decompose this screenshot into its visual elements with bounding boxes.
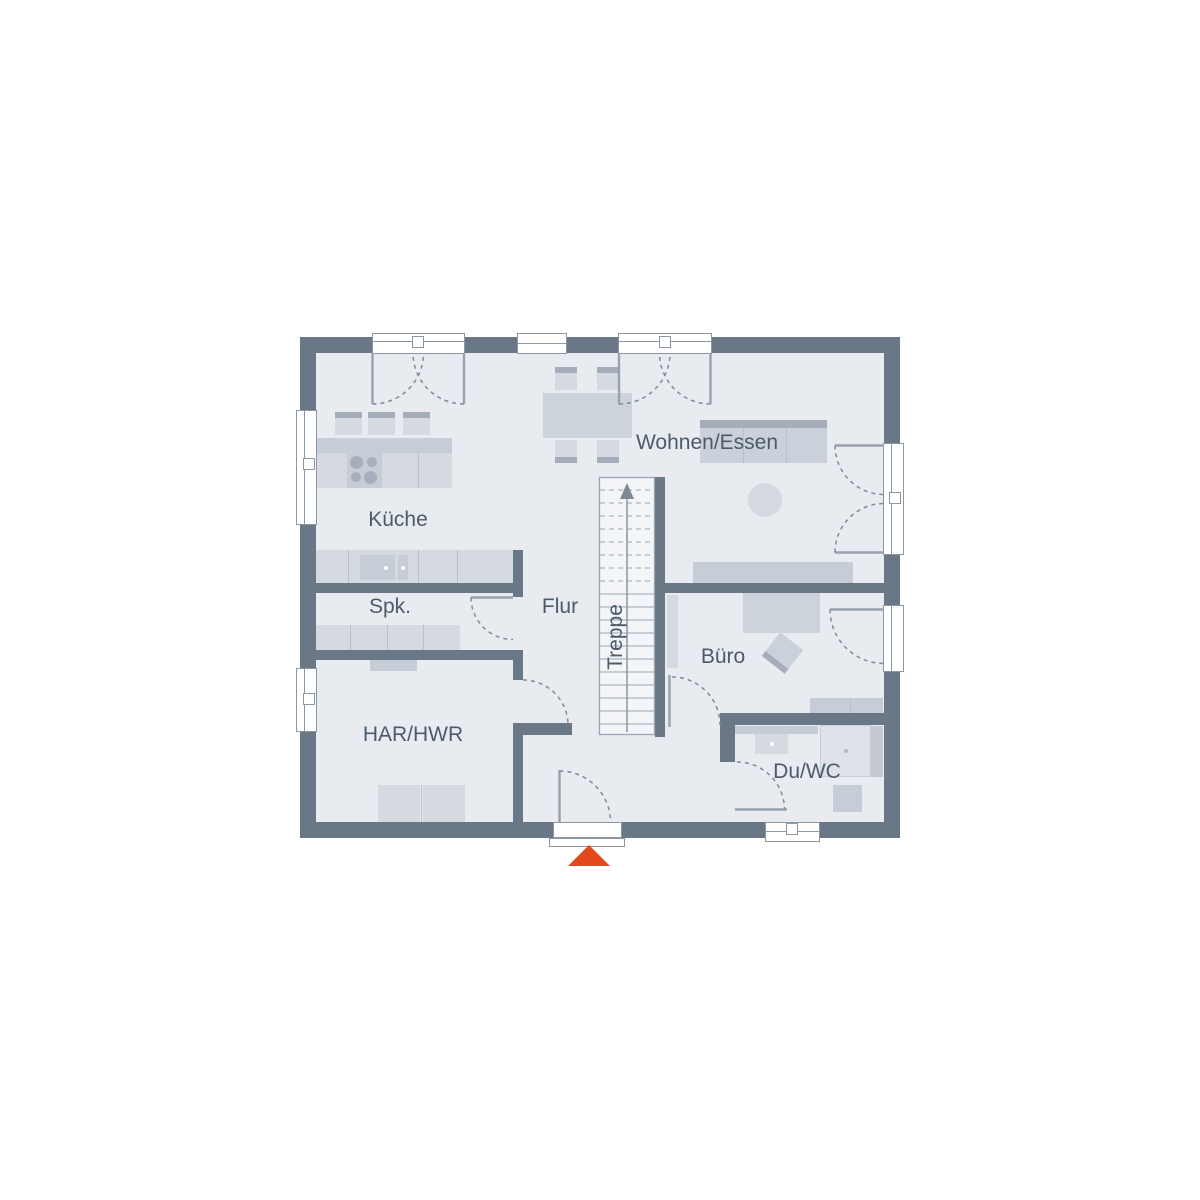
room-label-wohnen-essen: Wohnen/Essen: [636, 431, 778, 455]
chair-back: [555, 457, 577, 463]
room-label-treppe: Treppe: [604, 604, 628, 670]
kitchen-sink-counter: [316, 550, 513, 583]
chair-back: [597, 367, 619, 373]
wall-bath-stub: [720, 725, 735, 762]
door-handle: [659, 336, 671, 348]
shower-drain: [844, 749, 848, 753]
chair-back: [597, 457, 619, 463]
window-door-office: [883, 605, 904, 672]
room-label-buero: Büro: [701, 645, 745, 669]
room-label-kueche: Küche: [368, 508, 428, 532]
counter-divider: [348, 550, 349, 583]
chair-back: [555, 367, 577, 373]
counter-divider: [418, 453, 419, 488]
washbasin-counter: [735, 726, 818, 734]
counter-divider: [418, 550, 419, 583]
window-frame-line: [891, 606, 892, 671]
desk: [743, 593, 820, 633]
shelf-divider: [423, 625, 424, 650]
wall-living-office: [655, 583, 884, 593]
kitchen-counter-top: [316, 438, 452, 453]
entrance-direction-icon: [568, 845, 610, 866]
office-shelf: [667, 595, 678, 668]
shower-wall-strip: [871, 726, 883, 777]
sink: [360, 555, 395, 580]
door-handle: [412, 336, 424, 348]
wall-flur-stub: [513, 723, 572, 735]
counter-divider: [457, 550, 458, 583]
wall-utility-flur-upper: [513, 650, 523, 680]
wall-office-bath: [720, 713, 884, 725]
shelf-divider: [350, 625, 351, 650]
dining-table: [543, 393, 632, 438]
bar-stool-back: [403, 412, 430, 418]
bar-stool-back: [368, 412, 395, 418]
sofa-back: [700, 420, 827, 428]
window-top-center: [517, 333, 567, 354]
room-label-flur: Flur: [542, 595, 578, 619]
stove-burner: [364, 471, 377, 484]
wall-stairs: [655, 477, 665, 737]
window-handle: [303, 458, 315, 470]
appliance-divider: [421, 785, 422, 822]
floor-plan-canvas: Küche Spk. HAR/HWR Flur Treppe Wohnen/Es…: [0, 0, 1200, 1200]
window-handle: [303, 693, 315, 705]
utility-shelf: [370, 660, 417, 671]
sideboard: [693, 562, 853, 583]
sink-drain: [401, 566, 405, 570]
door-handle: [889, 492, 901, 504]
wall-pantry-utility: [300, 650, 523, 660]
wall-kitchen-pantry: [300, 583, 513, 593]
basin-drain: [770, 742, 774, 746]
floor-plan: Küche Spk. HAR/HWR Flur Treppe Wohnen/Es…: [300, 337, 900, 838]
kitchen-counter: [316, 453, 452, 488]
bar-stool-back: [335, 412, 362, 418]
sink-drain: [384, 566, 388, 570]
room-label-du-wc: Du/WC: [773, 760, 841, 784]
coffee-table: [748, 483, 782, 517]
stove-burner: [350, 456, 363, 469]
washing-machine: [378, 785, 420, 822]
cabinet-divider: [850, 698, 851, 713]
sofa-seat-divider: [786, 428, 787, 463]
dryer: [423, 785, 465, 822]
entrance-door-opening: [553, 822, 622, 838]
window-frame-line: [518, 343, 566, 344]
wall-stub-kitchen: [513, 550, 523, 597]
window-handle: [786, 823, 798, 835]
shelf-divider: [387, 625, 388, 650]
toilet: [833, 785, 862, 812]
office-cabinet: [810, 698, 883, 713]
stove-burner: [367, 457, 377, 467]
stove-burner: [351, 472, 361, 482]
room-label-har-hwr: HAR/HWR: [363, 723, 463, 747]
pantry-shelf: [316, 625, 460, 650]
room-label-spk: Spk.: [369, 595, 411, 619]
wall-utility-flur-lower: [513, 735, 523, 822]
